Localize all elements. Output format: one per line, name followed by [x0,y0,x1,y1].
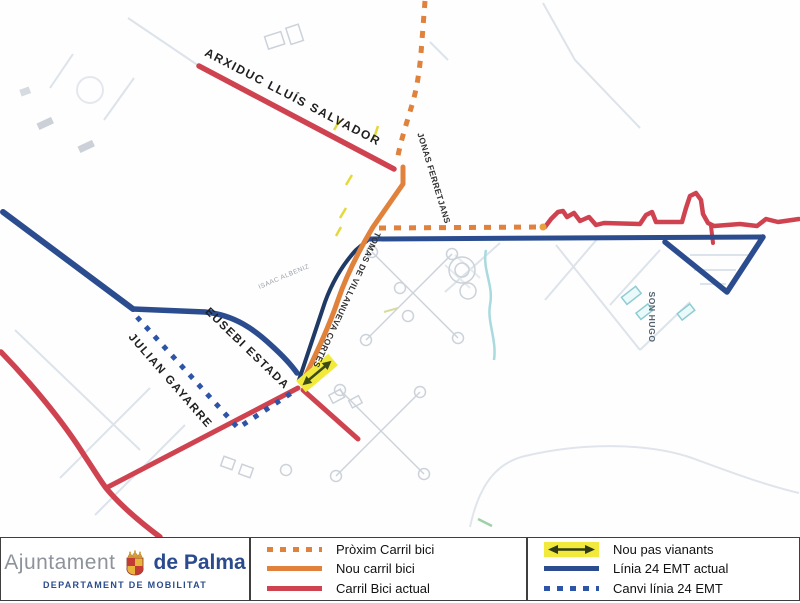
logo-text-de-palma: de Palma [154,551,246,575]
double-arrow-icon [544,542,599,557]
legend-box-bike: Pròxim Carril bici Nou carril bici Carri… [250,537,527,601]
route-proxim-carril-bici [379,1,543,228]
palma-coat-of-arms-icon [123,549,147,577]
legend-label-canvi-linia-24: Canvi línia 24 EMT [613,581,723,596]
swatch-blue-dashed [544,586,599,591]
street-label-son-hugo: SON HUGO [647,291,657,342]
swatch-red-solid [267,586,322,591]
legend-label-proxim-carril-bici: Pròxim Carril bici [336,542,434,557]
map-page: ARXIDUC LLUÍS SALVADOR JONAS FERRETJANS … [0,0,800,603]
background-streets [15,3,799,527]
legend-item-carril-bici-actual: Carril Bici actual [267,581,526,596]
logo-text-ajuntament: Ajuntament [4,551,115,575]
swatch-blue-solid [544,566,599,571]
legend-label-nou-pas-vianants: Nou pas vianants [613,542,713,557]
swatch-yellow-arrow [544,542,599,557]
legend-label-nou-carril-bici: Nou carril bici [336,561,415,576]
swatch-orange-solid [267,566,322,571]
swatch-orange-dashed [267,547,322,552]
logo-box: Ajuntament de Palma DEPARTAMENT DE MOBIL… [0,537,250,601]
legend-bar: Ajuntament de Palma DEPARTAMENT DE MOBIL… [0,537,800,601]
legend-item-linia-24-actual: Línia 24 EMT actual [544,561,799,576]
legend-item-nou-carril-bici: Nou carril bici [267,561,526,576]
legend-label-linia-24-actual: Línia 24 EMT actual [613,561,728,576]
legend-rows-transit: Nou pas vianants Línia 24 EMT actual Can… [528,538,799,600]
legend-rows-bike: Pròxim Carril bici Nou carril bici Carri… [251,538,526,600]
legend-item-nou-pas-vianants: Nou pas vianants [544,542,799,557]
legend-item-canvi-linia-24: Canvi línia 24 EMT [544,581,799,596]
legend-label-carril-bici-actual: Carril Bici actual [336,581,430,596]
legend-item-proxim-carril-bici: Pròxim Carril bici [267,542,526,557]
pools-and-stream [478,250,695,526]
map-canvas [0,0,800,603]
logo-brand-row: Ajuntament de Palma [4,549,245,577]
legend-box-transit: Nou pas vianants Línia 24 EMT actual Can… [527,537,800,601]
logo-department-text: DEPARTAMENT DE MOBILITAT [43,580,207,590]
